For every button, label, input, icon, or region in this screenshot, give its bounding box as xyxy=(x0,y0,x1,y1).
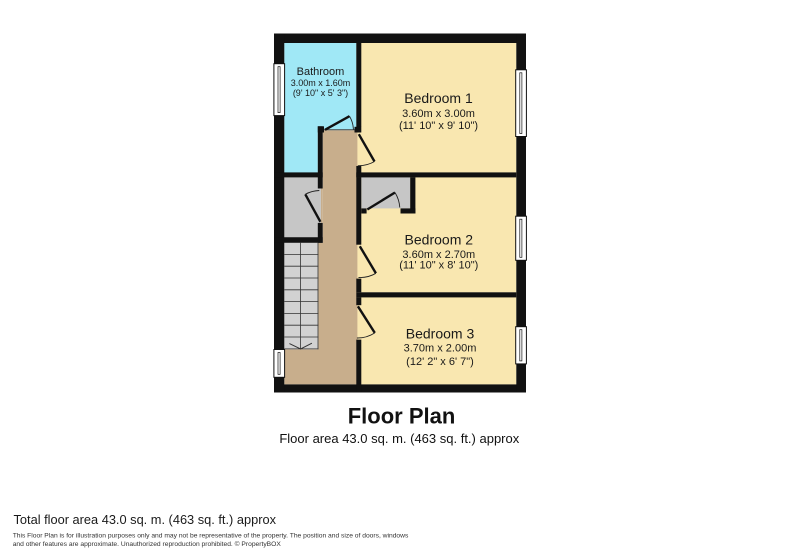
svg-text:(9' 10" x 5' 3"): (9' 10" x 5' 3") xyxy=(293,88,348,98)
svg-text:(11' 10" x 8' 10"): (11' 10" x 8' 10") xyxy=(399,260,478,272)
svg-text:Bedroom 2: Bedroom 2 xyxy=(405,231,474,247)
svg-text:This Floor Plan is for illustr: This Floor Plan is for illustration purp… xyxy=(13,533,409,540)
svg-text:Bedroom 1: Bedroom 1 xyxy=(404,90,473,106)
svg-text:and other features are approxi: and other features are approximate. Unau… xyxy=(13,540,282,548)
svg-text:Bathroom: Bathroom xyxy=(297,66,345,78)
svg-text:Bedroom 3: Bedroom 3 xyxy=(406,325,475,341)
svg-text:3.60m x 3.00m: 3.60m x 3.00m xyxy=(402,108,475,120)
svg-text:(12' 2" x 6' 7"): (12' 2" x 6' 7") xyxy=(406,356,474,368)
svg-text:(11' 10" x 9' 10"): (11' 10" x 9' 10") xyxy=(399,120,478,132)
svg-text:3.70m x 2.00m: 3.70m x 2.00m xyxy=(404,343,477,355)
svg-text:Floor Plan: Floor Plan xyxy=(348,404,456,429)
svg-text:Floor area 43.0 sq. m. (463 sq: Floor area 43.0 sq. m. (463 sq. ft.) app… xyxy=(279,431,519,446)
svg-text:Total floor area 43.0 sq. m. (: Total floor area 43.0 sq. m. (463 sq. ft… xyxy=(14,512,277,527)
svg-text:3.00m x 1.60m: 3.00m x 1.60m xyxy=(291,78,351,88)
